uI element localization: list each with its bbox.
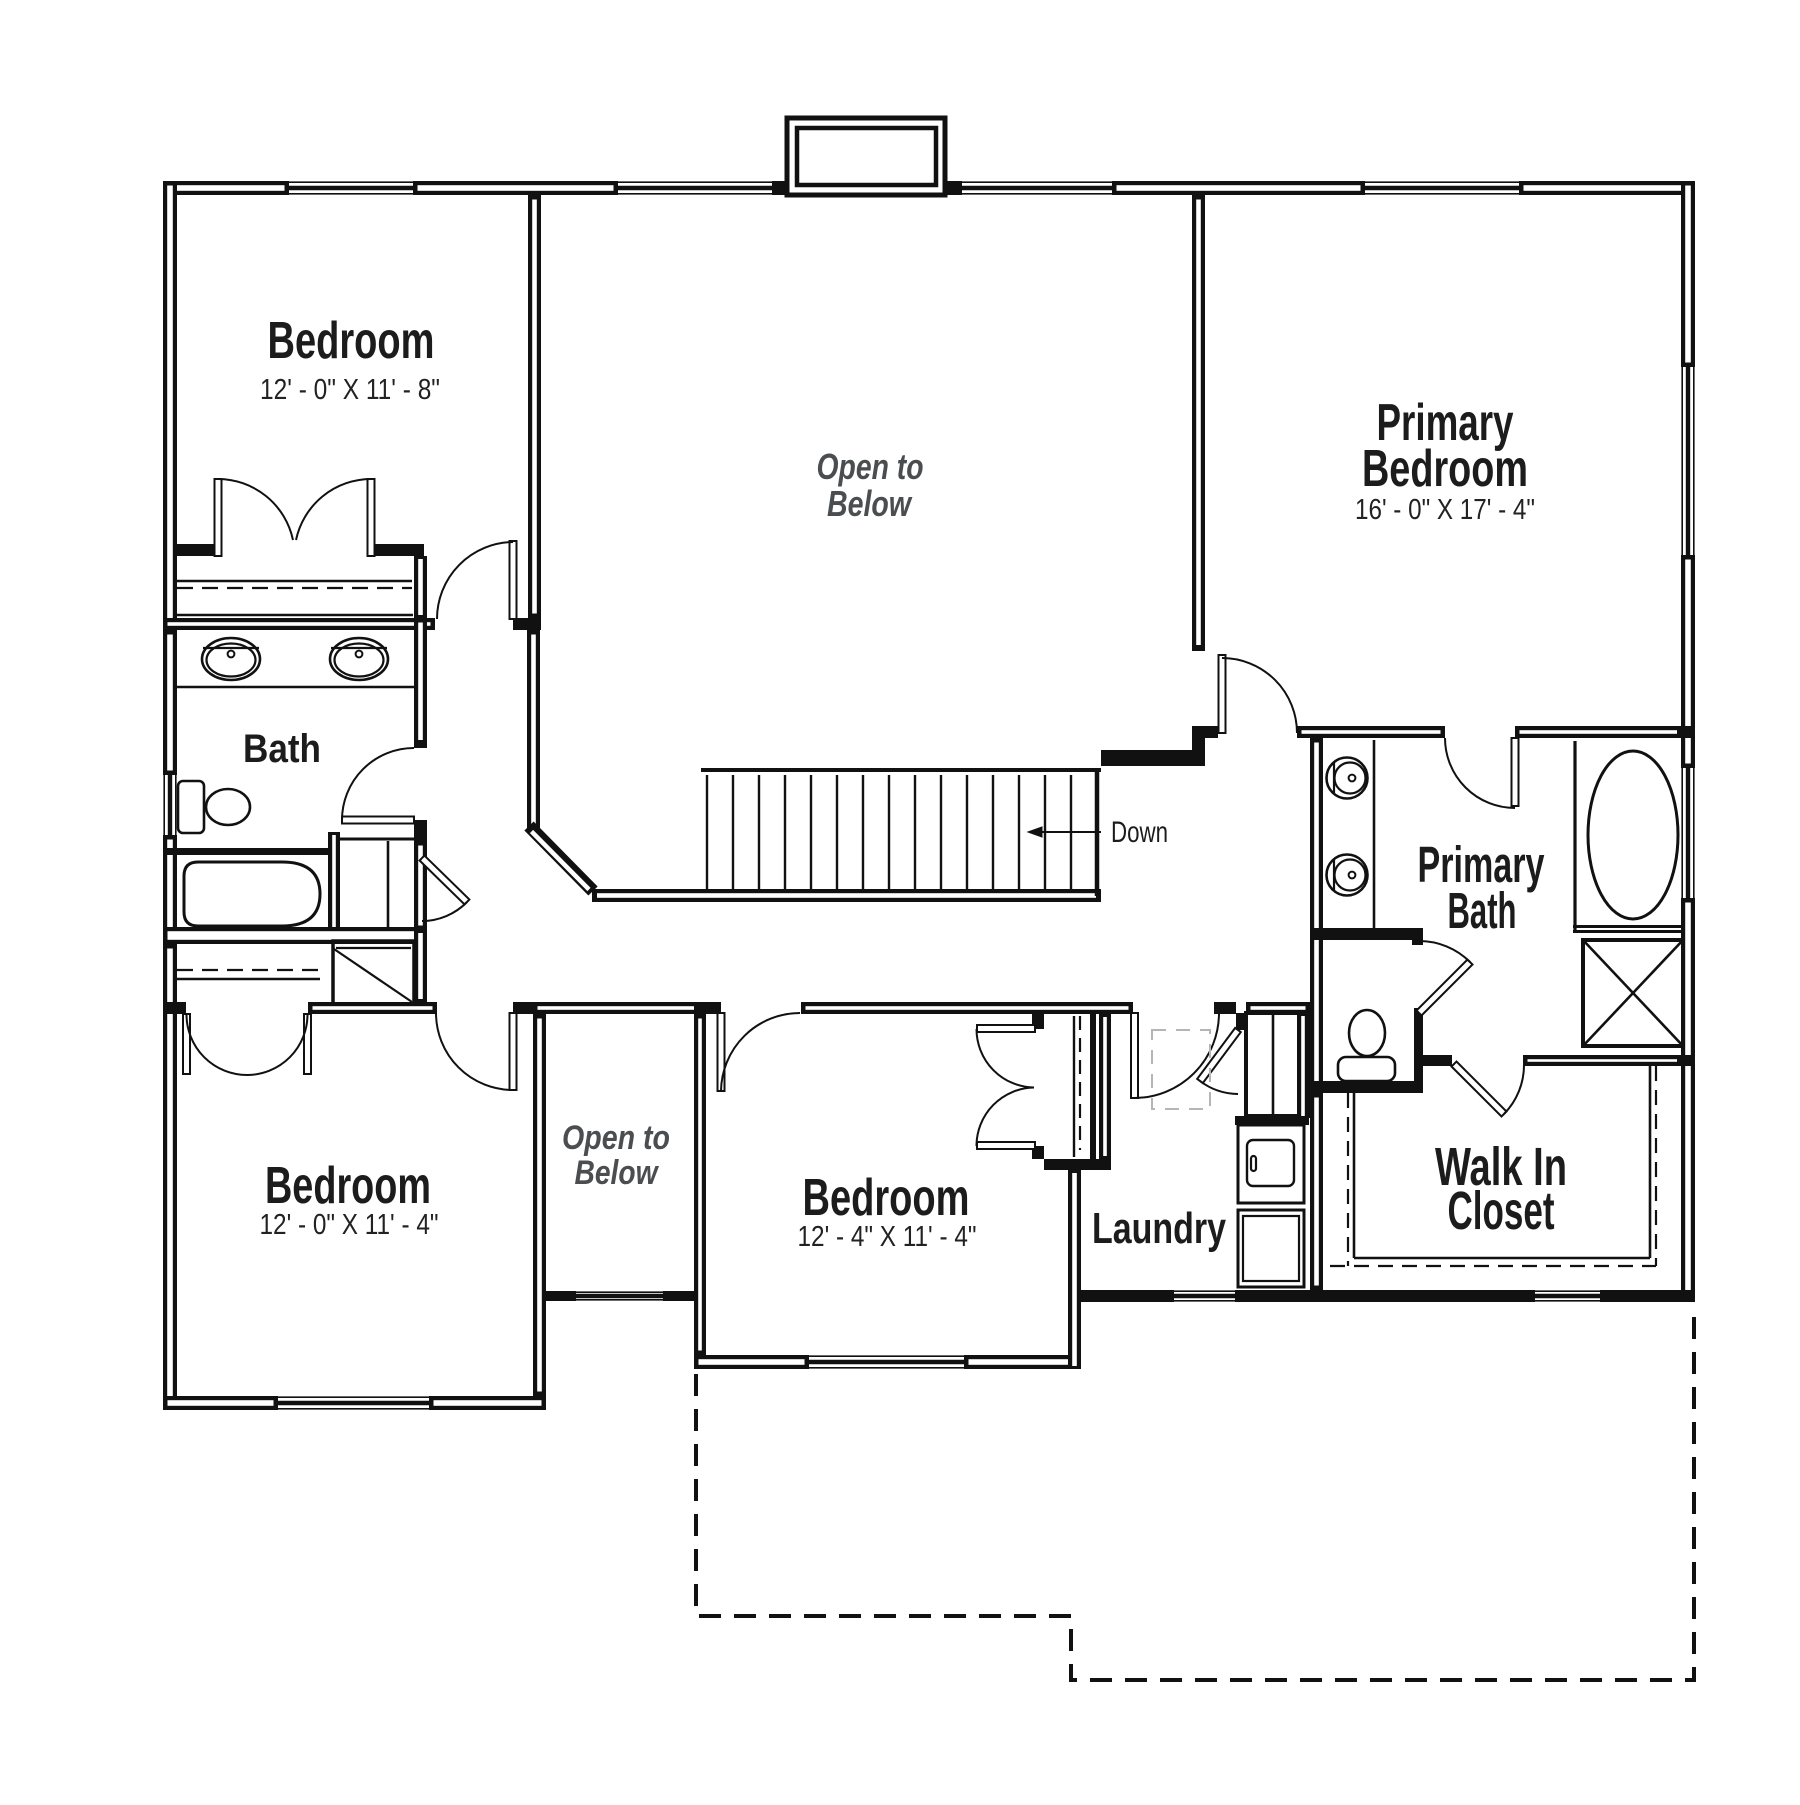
svg-text:Bath: Bath: [243, 727, 321, 771]
svg-text:Closet: Closet: [1448, 1181, 1555, 1241]
svg-text:12' - 0" X 11' - 8": 12' - 0" X 11' - 8": [260, 374, 440, 406]
svg-text:Bedroom: Bedroom: [803, 1169, 970, 1227]
svg-text:12' - 0" X 11' - 4": 12' - 0" X 11' - 4": [260, 1209, 439, 1241]
svg-text:12' - 4" X 11' - 4": 12' - 4" X 11' - 4": [798, 1221, 977, 1253]
svg-text:Open to: Open to: [562, 1119, 670, 1157]
svg-text:16' - 0" X 17' - 4": 16' - 0" X 17' - 4": [1355, 494, 1535, 526]
svg-text:Below: Below: [827, 483, 913, 524]
svg-text:Bath: Bath: [1448, 882, 1517, 939]
svg-text:Down: Down: [1111, 816, 1168, 849]
svg-text:Below: Below: [575, 1154, 660, 1192]
svg-text:Bedroom: Bedroom: [268, 312, 435, 370]
svg-text:Bedroom: Bedroom: [265, 1157, 431, 1215]
svg-text:Laundry: Laundry: [1092, 1204, 1226, 1253]
svg-text:Open to: Open to: [817, 446, 924, 487]
svg-text:Bedroom: Bedroom: [1362, 440, 1528, 498]
